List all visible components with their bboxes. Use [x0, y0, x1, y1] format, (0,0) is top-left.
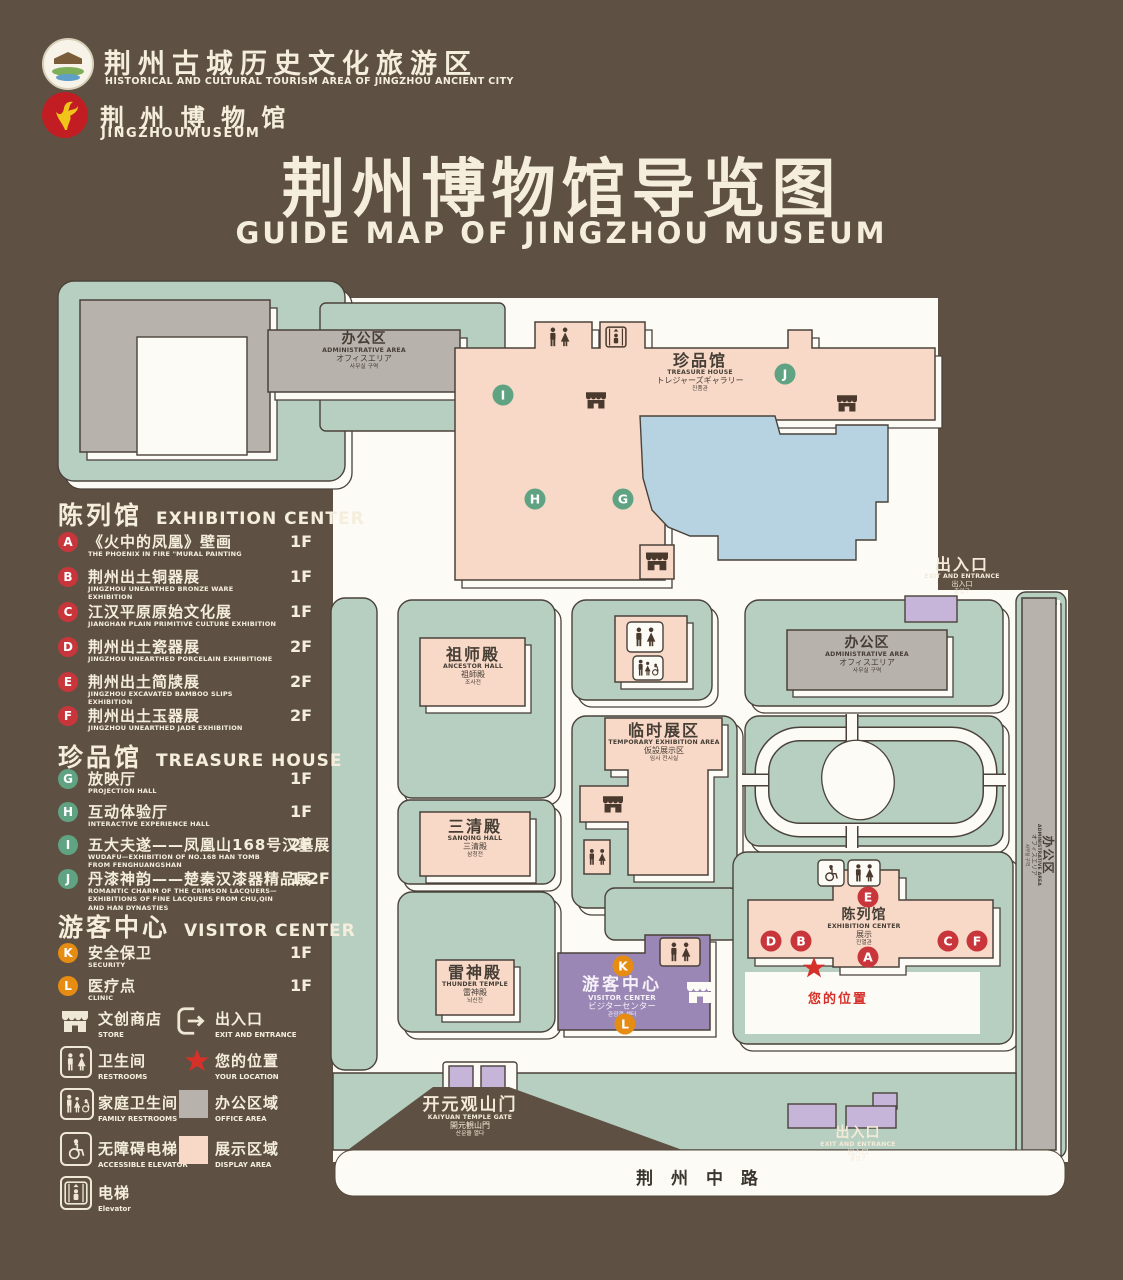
label-admin-strip: 办公区ADMINISTRATIVE AREA オフィスエリア사무실 구역 — [1024, 824, 1054, 886]
legend-exit: 出入口EXIT AND ENTRANCE — [215, 1008, 297, 1039]
your-location-icon — [184, 1048, 210, 1078]
marker-k: K — [613, 956, 634, 977]
legend-item-a: A 《火中的凤凰》壁画 THE PHOENIX IN FIRE "MURAL P… — [58, 531, 358, 569]
legend-item-c: C 江汉平原原始文化展 JIANGHAN PLAIN PRIMITIVE CUL… — [58, 601, 358, 639]
label-treasure-house: 珍品馆TREASURE HOUSE トレジャーズギャラリー진품관 — [656, 352, 743, 392]
legend-restrooms: 卫生间RESTROOMS — [98, 1050, 147, 1081]
label-ancestor-hall: 祖师殿ANCESTOR HALL 祖師殿조사전 — [443, 646, 503, 686]
legend-item-e: E 荆州出土简牍展 JINGZHOU EXCAVATED BAMBOO SLIP… — [58, 671, 358, 709]
gate-pillar-left — [449, 1066, 473, 1090]
marker-j: J — [775, 364, 796, 385]
legend-section-exhibition: 陈列馆EXHIBITION CENTER — [58, 496, 365, 532]
display-area-swatch — [179, 1136, 208, 1164]
entrance-south-a — [788, 1104, 836, 1128]
office-area-swatch — [179, 1090, 208, 1118]
tourism-area-logo — [42, 38, 94, 90]
legend-store: 文创商店STORE — [98, 1008, 162, 1039]
legend-your-location: 您的位置YOUR LOCATION — [215, 1050, 279, 1081]
legend-display-area: 展示区域DISPLAY AREA — [215, 1138, 279, 1169]
label-admin-right: 办公区ADMINISTRATIVE AREA オフィスエリア사무실 구역 — [825, 636, 909, 674]
marker-d: D — [761, 931, 782, 952]
marker-f: F — [967, 931, 988, 952]
label-exit-northeast: 出入口EXIT AND ENTRANCE 出入口출입구 — [924, 556, 999, 595]
label-kaiyuan-gate: 开元观山门 KAIYUAN TEMPLE GATE 開元観山門산문을 열다 — [423, 1096, 518, 1137]
entrance-northeast — [905, 596, 957, 622]
visitor-wc-annex — [660, 938, 700, 966]
guide-map-poster: 荆州古城历史文化旅游区 HISTORICAL AND CULTURAL TOUR… — [0, 0, 1123, 1280]
label-your-location: 您的位置 — [808, 988, 868, 1007]
museum-logo — [42, 92, 88, 138]
marker-a: A — [858, 947, 879, 968]
marker-i: I — [493, 385, 514, 406]
label-exit-south: 出入口EXIT AND ENTRANCE 出入口출입구 — [820, 1126, 895, 1163]
restroom-icon — [60, 1046, 92, 1078]
marker-e: E — [858, 887, 879, 908]
label-temporary-exhibition: 临时展区TEMPORARY EXHIBITION AREA 仮設展示区임시 전시… — [608, 722, 719, 762]
admin-courtyard — [137, 337, 247, 455]
elevator-icon — [60, 1176, 92, 1210]
page-subtitle: GUIDE MAP OF JINGZHOU MUSEUM — [0, 216, 1123, 250]
legend-item-i: I 五大夫遂——凤凰山168号汉墓展 WUDAFU—EXHIBITION OF … — [58, 834, 358, 872]
temporary-wc-annex — [584, 840, 610, 874]
marker-g: G — [613, 489, 634, 510]
plot-visitor-north — [605, 888, 740, 940]
legend-elevator: 电梯Elevator — [98, 1182, 131, 1213]
legend-family-restrooms: 家庭卫生间FAMILY RESTROOMS — [98, 1092, 178, 1123]
marker-h: H — [525, 489, 546, 510]
label-thunder-temple: 雷神殿THUNDER TEMPLE 雷神殿뇌신전 — [442, 964, 508, 1004]
store-icon — [60, 1008, 90, 1038]
label-road: 荆 州 中 路 — [636, 1164, 764, 1189]
marker-b: B — [791, 931, 812, 952]
legend-item-j: J 丹漆神韵——楚秦汉漆器精品展 ROMANTIC CHARM OF THE C… — [58, 868, 358, 906]
gate-pillar-right — [481, 1066, 505, 1090]
tourism-area-subtitle: HISTORICAL AND CULTURAL TOURISM AREA OF … — [105, 76, 514, 87]
legend-item-d: D 荆州出土瓷器展 JINGZHOU UNEARTHED PORCELAIN E… — [58, 636, 358, 674]
legend-accessible-elevator: 无障碍电梯ACCESSIBLE ELEVATOR — [98, 1138, 188, 1169]
phoenix-icon — [42, 92, 88, 138]
label-visitor-center: 游客中心 VISITOR CENTER ビジターセンター 관광객 센터 — [582, 976, 662, 1019]
marker-l: L — [615, 1014, 636, 1035]
label-sanqing-hall: 三清殿SANQING HALL 三清殿삼청전 — [448, 818, 503, 858]
family-restroom-icon — [60, 1088, 94, 1120]
exit-door-icon — [176, 1006, 206, 1040]
label-exhibition-center: 陈列馆EXHIBITION CENTER 展示진열관 — [827, 908, 900, 946]
accessible-elevator-icon — [60, 1132, 92, 1166]
label-admin-topleft: 办公区ADMINISTRATIVE AREA オフィスエリア사무실 구역 — [322, 332, 406, 370]
marker-c: C — [938, 931, 959, 952]
legend-office-area: 办公区域OFFICE AREA — [215, 1092, 279, 1123]
legend-item-b: B 荆州出土铜器展 JINGZHOU UNEARTHED BRONZE WARE… — [58, 566, 358, 604]
legend-section-visitor: 游客中心VISITOR CENTER — [58, 908, 356, 944]
